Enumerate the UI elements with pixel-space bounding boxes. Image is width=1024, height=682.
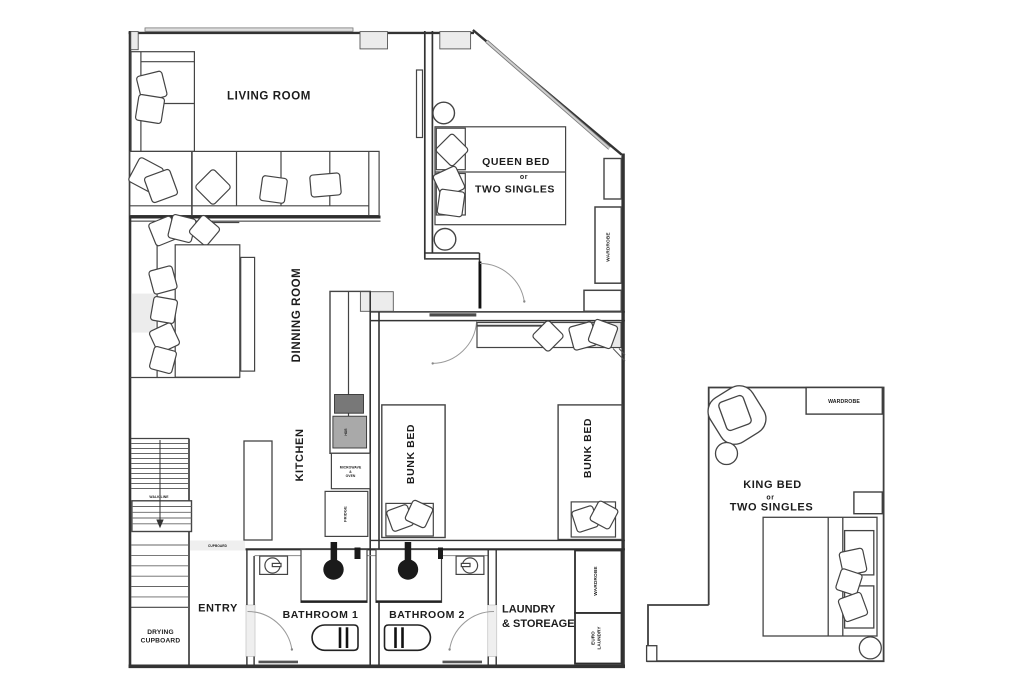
svg-text:FRIDGE: FRIDGE: [343, 506, 348, 522]
svg-text:QUEEN BED: QUEEN BED: [482, 156, 550, 168]
svg-text:CUPBOARD: CUPBOARD: [141, 638, 181, 645]
svg-text:TWO SINGLES: TWO SINGLES: [730, 502, 814, 514]
svg-text:WARDROBE: WARDROBE: [593, 566, 599, 596]
svg-text:BATHROOM 1: BATHROOM 1: [283, 609, 359, 621]
svg-text:WARDROBE: WARDROBE: [828, 399, 860, 405]
svg-text:HOB: HOB: [344, 428, 348, 436]
svg-text:ENTRY: ENTRY: [198, 603, 238, 615]
svg-text:EURO: EURO: [591, 631, 596, 645]
svg-text:DINNING ROOM: DINNING ROOM: [291, 268, 303, 363]
svg-text:MICROWAVE: MICROWAVE: [340, 466, 362, 470]
svg-text:LIVING ROOM: LIVING ROOM: [227, 91, 311, 103]
svg-text:LAUNDRY: LAUNDRY: [502, 604, 556, 616]
svg-text:or: or: [520, 174, 528, 181]
svg-text:KING BED: KING BED: [743, 479, 802, 491]
svg-text:WARDROBE: WARDROBE: [606, 232, 612, 262]
svg-text:OVEN: OVEN: [346, 474, 356, 478]
svg-text:BUNK BED: BUNK BED: [582, 418, 594, 478]
svg-text:& STOREAGE: & STOREAGE: [502, 618, 575, 630]
svg-text:or: or: [766, 495, 774, 502]
svg-text:WALK LINE: WALK LINE: [149, 495, 169, 499]
svg-text:KITCHEN: KITCHEN: [294, 428, 306, 481]
svg-text:BATHROOM 2: BATHROOM 2: [389, 609, 465, 621]
svg-text:LAUNDRY: LAUNDRY: [597, 626, 602, 649]
svg-text:TWO SINGLES: TWO SINGLES: [475, 184, 555, 196]
svg-text:DRYING: DRYING: [147, 629, 174, 636]
svg-text:BUNK BED: BUNK BED: [405, 424, 417, 484]
svg-text:CUPBOARD: CUPBOARD: [208, 544, 228, 548]
